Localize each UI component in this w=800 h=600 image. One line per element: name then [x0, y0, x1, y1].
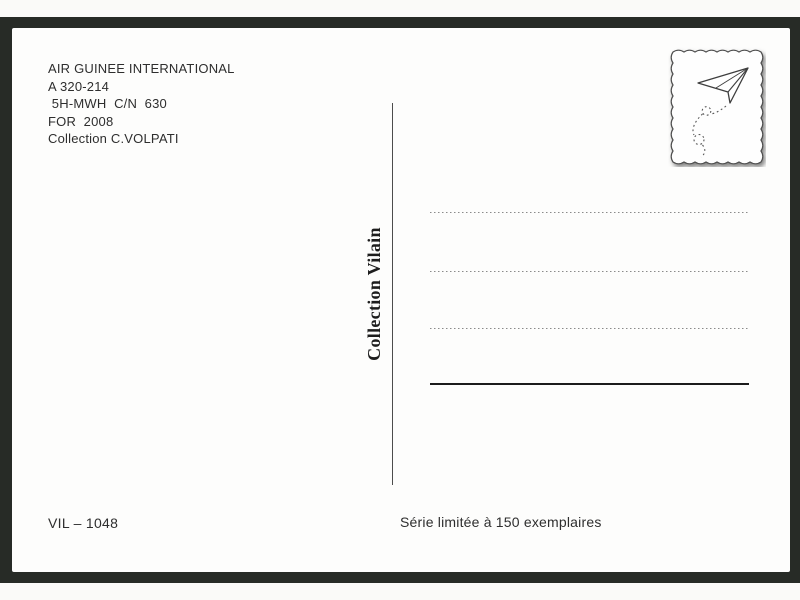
- vertical-divider: [392, 103, 393, 485]
- collection-label: Collection Vilain: [364, 204, 386, 384]
- collector-info-block: AIR GUINEE INTERNATIONAL A 320-214 5H-MW…: [48, 60, 235, 148]
- info-line-registration: 5H-MWH C/N 630: [48, 95, 235, 113]
- address-line-dotted-2: [430, 271, 750, 272]
- info-line-aircraft: A 320-214: [48, 78, 235, 96]
- info-line-airline: AIR GUINEE INTERNATIONAL: [48, 60, 235, 78]
- address-line-dotted-1: [430, 212, 750, 213]
- info-line-collection: Collection C.VOLPATI: [48, 130, 235, 148]
- address-line-solid: [430, 383, 749, 385]
- edition-note: Série limitée à 150 exemplaires: [400, 514, 602, 530]
- catalog-number: VIL – 1048: [48, 515, 118, 531]
- postcard-back: AIR GUINEE INTERNATIONAL A 320-214 5H-MW…: [12, 28, 790, 572]
- paper-plane-icon: [668, 47, 766, 167]
- address-line-dotted-3: [430, 328, 750, 329]
- info-line-year: FOR 2008: [48, 113, 235, 131]
- dark-backdrop: AIR GUINEE INTERNATIONAL A 320-214 5H-MW…: [0, 17, 800, 583]
- stamp-box: [668, 47, 766, 167]
